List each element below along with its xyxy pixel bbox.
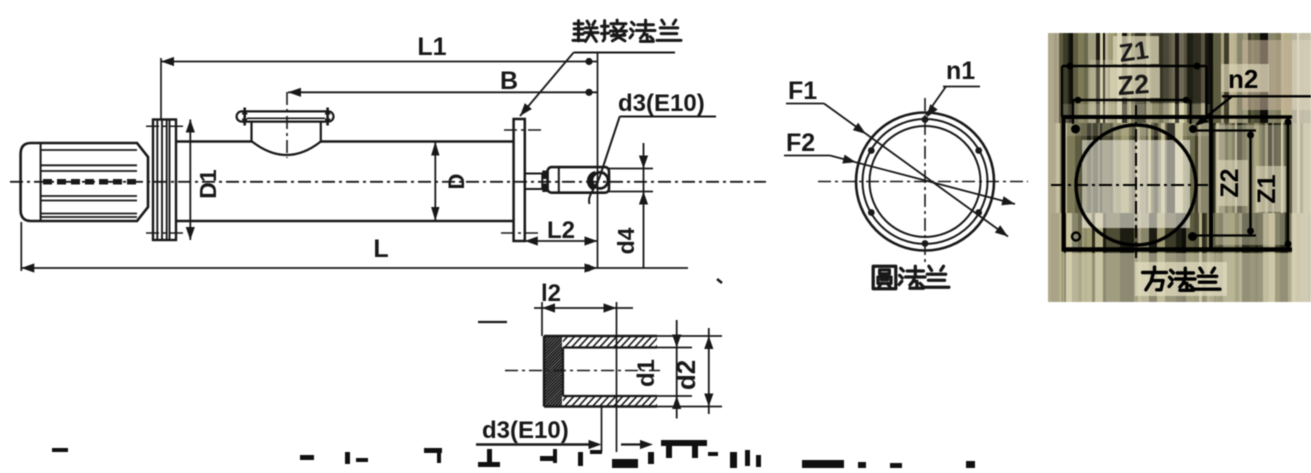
- svg-text:n1: n1: [946, 57, 975, 85]
- svg-text:Z2: Z2: [1216, 168, 1244, 197]
- svg-text:F1: F1: [788, 77, 817, 105]
- svg-text:B: B: [500, 67, 518, 95]
- svg-text:D1: D1: [195, 169, 221, 199]
- svg-text:L2: L2: [547, 217, 575, 244]
- svg-text:d3(E10): d3(E10): [618, 90, 705, 117]
- svg-text:l2: l2: [541, 280, 561, 307]
- svg-text:d3(E10): d3(E10): [482, 417, 569, 444]
- svg-text:Z1: Z1: [1117, 36, 1150, 68]
- svg-text:F2: F2: [786, 129, 815, 157]
- svg-text:Z1: Z1: [1253, 174, 1281, 203]
- svg-text:n2: n2: [1228, 64, 1258, 94]
- svg-text:d1: d1: [633, 359, 660, 387]
- svg-text:L: L: [373, 235, 388, 263]
- svg-text:d4: d4: [613, 227, 639, 254]
- svg-text:d2: d2: [671, 360, 701, 390]
- svg-text:Z2: Z2: [1117, 69, 1151, 101]
- svg-text:D: D: [444, 174, 469, 190]
- svg-text:L1: L1: [417, 33, 446, 61]
